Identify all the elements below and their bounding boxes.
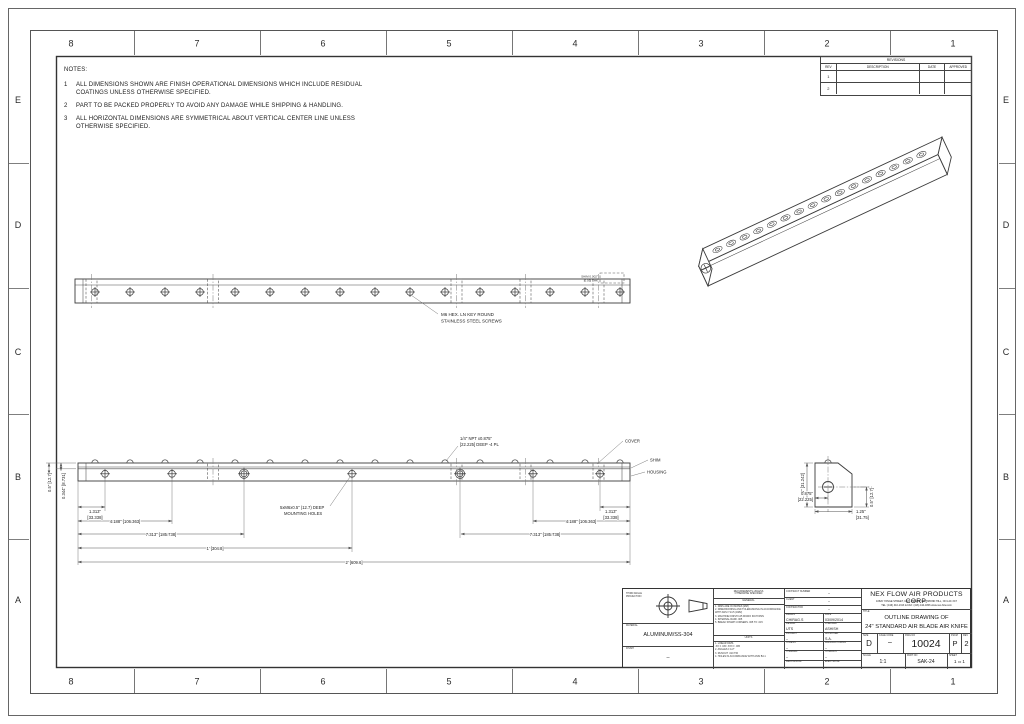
revisions-col-date: DATE [920, 64, 946, 70]
sheet-label: SHEET [949, 655, 957, 658]
revision-number: 2 [821, 83, 837, 94]
manufacturing-label: MANUFACTURING [825, 642, 846, 645]
screw-note-line1: M6 HEX. LN KEY ROUND [441, 312, 495, 317]
revision-approved [945, 83, 971, 94]
contract-number-value: – [828, 591, 830, 595]
zone-row-left: C [15, 347, 22, 357]
sheet-value: 1 OF 1 [947, 659, 972, 664]
revisions-table: REVISIONS REV DESCRIPTION DATE APPROVED … [820, 56, 972, 96]
size-label: SIZE [863, 635, 868, 638]
dwg-no-label: DWG NO [905, 635, 915, 638]
contract-number-label: CONTRACT NUMBER [786, 591, 810, 594]
zone-row-left: D [15, 220, 22, 230]
design-value: UTS [786, 627, 793, 631]
project-label: PROJECT [786, 633, 797, 636]
dim-1313-left-in: 1.313" [89, 509, 101, 514]
zone-col-top: 2 [824, 39, 829, 49]
revision-description [837, 71, 920, 82]
bottom-view: 1.313" [33.338] 1.313" [33.338] 4.188" [… [46, 436, 667, 565]
gen-item: 5. BREAK SHARP CORNERS .005 TO .015 [715, 621, 782, 624]
req-header-line2: OTHERWISE SPECIFIED [714, 593, 783, 596]
approved-value: S.A. [825, 637, 832, 641]
revision-description [837, 83, 920, 94]
symbols-value: – [825, 655, 827, 659]
end-view-dimensions [804, 463, 869, 514]
zone-col-bottom: 4 [572, 677, 577, 687]
revisions-title: REVISIONS [821, 57, 971, 64]
dim-4188-right: 4.188" [106.363] [566, 519, 597, 524]
note-item: 2 PART TO BE PACKED PROPERLY TO AVOID AN… [64, 102, 366, 110]
notes-block: NOTES: 1 ALL DIMENSIONS SHOWN ARE FINISH… [64, 66, 366, 137]
thermal-value: – [786, 655, 788, 659]
scale-value: 1:1 [861, 659, 905, 665]
rev-label: REV [963, 635, 968, 638]
revisions-col-description: DESCRIPTION [837, 64, 920, 70]
material-value: ALUMINUM/SS-304 [623, 632, 713, 638]
npt-note-line1: 1/4" NPT x0.875" [460, 436, 493, 441]
note-number: 1 [64, 81, 70, 97]
front-view: M6 HEX. LN KEY ROUND STAINLESS STEEL SCR… [75, 273, 630, 324]
thermal-label: THERMAL [786, 651, 797, 654]
zone-col-top: 8 [68, 39, 73, 49]
company-phone: TEL: (416) 410-1313 & FAX: (416) 410-180… [861, 604, 972, 607]
revisions-col-rev: REV [821, 64, 837, 70]
revision-approved [945, 71, 971, 82]
drawing-title-line2: 24" STANDARD AIR BLADE AIR KNIFE [861, 624, 972, 630]
material-label: MATERIAL [626, 625, 638, 628]
screw-note-line2: STAINLESS STEEL SCREWS [441, 319, 502, 324]
zone-col-top: 3 [698, 39, 703, 49]
revision-date [920, 71, 946, 82]
zone-row-right: B [1003, 472, 1009, 482]
company-address: 10520 YONGE STREET, UNIT 35B-220, RICHMO… [861, 600, 972, 603]
note-text: ALL DIMENSIONS SHOWN ARE FINISH OPERATIO… [76, 81, 366, 97]
checked-value: ASHISH [825, 627, 838, 631]
general-requirements-list: 1. DIMS ARE IN INCHES [MM] 2. DIMENSIONI… [715, 605, 782, 624]
drawn-value: CHIRAG.S [786, 618, 803, 622]
stress-value: – [786, 646, 788, 650]
title-label: TITLE [863, 611, 870, 614]
client-label: CLIENT [786, 599, 795, 602]
revision-row: 2 [821, 83, 971, 94]
zone-row-right: D [1003, 220, 1010, 230]
bottom-view-dimension-lines [49, 463, 630, 562]
revision-number: 1 [821, 71, 837, 82]
electrical-label: ELECTRICAL [825, 661, 840, 664]
sheet-number: 1 [954, 659, 957, 664]
mounting-holes-note-line2: MOUNTING HOLES [284, 511, 322, 516]
dim-1313-right-in: 1.313" [605, 509, 617, 514]
manufacturing-value: – [825, 646, 827, 650]
revision-row: 1 [821, 71, 971, 83]
zone-col-bottom: 3 [698, 677, 703, 687]
zone-row-right: C [1003, 347, 1010, 357]
dim-7313-left: 7.313" [185.738] [146, 532, 177, 537]
mechanical-value: – [786, 665, 788, 669]
zone-row-right: A [1003, 595, 1009, 605]
zone-col-bottom: 1 [950, 677, 955, 687]
dim-7313-right: 7.313" [185.738] [530, 532, 561, 537]
cage-code-label: CAGE CODE [879, 635, 893, 638]
zone-col-bottom: 6 [320, 677, 325, 687]
housing-label: HOUSING [647, 470, 667, 475]
zone-row-left: E [15, 95, 21, 105]
zone-col-top: 4 [572, 39, 577, 49]
requirements-header: REQUIREMENTS-UNLESS OTHERWISE SPECIFIED [714, 591, 783, 597]
design-label: DESIGN [786, 623, 795, 626]
note-item: 3 ALL HORIZONTAL DIMENSIONS ARE SYMMETRI… [64, 115, 366, 131]
sheet-total: 1 [962, 659, 965, 664]
third-angle-projection-label: THIRD ANGLE PROJECTION [626, 593, 656, 599]
zone-col-bottom: 8 [68, 677, 73, 687]
drawing-sheet: 8 7 6 5 4 3 2 1 8 7 6 5 4 3 2 1 E D C B … [0, 0, 1024, 724]
tb-line [623, 646, 713, 647]
dim-0344-vert: 0.344" [8.731] [61, 473, 66, 499]
part-no-value: SAK-24 [905, 659, 947, 665]
zone-col-bottom: 7 [194, 677, 199, 687]
zone-col-bottom: 5 [446, 677, 451, 687]
checked-label: CHECKED [825, 623, 837, 626]
client-value: – [828, 599, 830, 603]
date-label: DATE [825, 614, 831, 617]
drawn-label: DRAWN [786, 614, 795, 617]
electrical-value: – [825, 665, 827, 669]
end-dim-0875-in: 0.875" [801, 491, 813, 496]
units-label: UNITS [713, 636, 784, 639]
end-dim-05: 0.5" [12.7] [869, 488, 874, 507]
tb-line [784, 597, 861, 598]
zone-row-left: A [15, 595, 21, 605]
notes-title: NOTES: [64, 66, 366, 74]
mechanical-label: MECHANICAL [786, 661, 802, 664]
symbols-label: SYMBOLS [825, 651, 837, 654]
bottom-view-screw-bumps [92, 460, 623, 463]
drawing-title-line1: OUTLINE DRAWING OF [861, 615, 972, 621]
dim-1ft: 1' [304.8] [206, 546, 223, 551]
dwg-no-value: 10024 [903, 638, 949, 650]
project-value: – [786, 637, 788, 641]
end-dim-0875-mm: [22.225] [798, 497, 813, 502]
contractor-label: CONTRACTOR [786, 607, 803, 610]
units-item: 4. HOLES IN ACCORDANCE WITH ANSI B4.1 [715, 655, 782, 658]
bottom-view-mounting-holes [100, 468, 605, 480]
stress-label: STRESS [786, 642, 796, 645]
zone-row-left: B [15, 472, 21, 482]
dim-4188-left: 4.188" [106.363] [110, 519, 141, 524]
part-no-label: PART NO [907, 655, 917, 658]
approved-label: APPROVED [825, 633, 838, 636]
general-label: GENERAL [713, 599, 784, 602]
note-number: 2 [64, 102, 70, 110]
zone-row-right: E [1003, 95, 1009, 105]
scale-label: SCALE [863, 655, 871, 658]
fscm-label: FSCM [951, 635, 958, 638]
size-value: D [861, 639, 877, 648]
front-view-screw-holes [90, 287, 625, 297]
date-value: 03/09/2014 [825, 618, 843, 622]
zone-col-top: 6 [320, 39, 325, 49]
zone-col-top: 1 [950, 39, 955, 49]
end-view: 1.23" [31.242] 0.875" [22.225] 1.25" [31… [798, 456, 874, 520]
cage-code-value: – [877, 639, 903, 646]
zone-col-top: 5 [446, 39, 451, 49]
rev-value: 2 [961, 639, 972, 648]
cover-label: COVER [625, 439, 640, 444]
isometric-view [693, 137, 957, 286]
note-text: ALL HORIZONTAL DIMENSIONS ARE SYMMETRICA… [76, 115, 366, 131]
units-list: 1. LINEAR DIMS. .XX ± .030 .XXX ± .005 2… [715, 642, 782, 658]
finish-label: FINISH [626, 648, 634, 651]
end-dim-125-in: 1.25" [856, 509, 866, 514]
third-angle-projection-icon [655, 593, 711, 620]
revisions-col-approved: APPROVED [945, 64, 971, 70]
revision-date [920, 83, 946, 94]
zone-col-bottom: 2 [824, 677, 829, 687]
note-text: PART TO BE PACKED PROPERLY TO AVOID ANY … [76, 102, 343, 110]
note-item: 1 ALL DIMENSIONS SHOWN ARE FINISH OPERAT… [64, 81, 366, 97]
dim-05-vert: 0.5" [12.7] [47, 473, 52, 492]
tb-line [861, 609, 972, 610]
dim-1313-right-mm: [33.338] [603, 515, 618, 520]
contractor-value: – [828, 607, 830, 611]
bottom-view-extension-lines [46, 463, 630, 565]
dim-2ft: 2' [609.6] [345, 560, 362, 565]
end-dim-125-mm: [31.75] [856, 515, 869, 520]
revisions-header-row: REV DESCRIPTION DATE APPROVED [821, 64, 971, 71]
zone-col-top: 7 [194, 39, 199, 49]
tb-divider [784, 589, 785, 669]
dim-1313-left-mm: [33.338] [87, 515, 102, 520]
note-number: 3 [64, 115, 70, 131]
mounting-holes-note-line1: 5xM6x0.5" (12.7) DEEP [280, 505, 325, 510]
fscm-value: P [949, 639, 961, 648]
proj-label-line2: PROJECTION [626, 596, 656, 599]
finish-value: – [623, 655, 713, 661]
npt-note-line2: [22.225] DEEP -4 PL [460, 442, 499, 447]
tb-line [784, 622, 861, 623]
shim-tiny-note-line2: [0.05] THK [584, 279, 598, 283]
shim-label: SHIM [650, 458, 661, 463]
sheet-of-label: OF [958, 661, 961, 664]
title-block: THIRD ANGLE PROJECTION MATERIAL ALUMINUM… [622, 588, 971, 668]
